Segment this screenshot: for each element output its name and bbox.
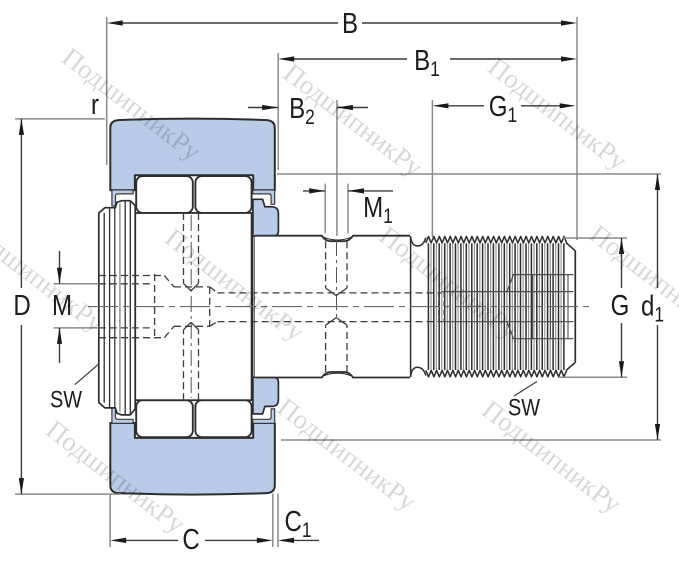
svg-text:SW: SW	[50, 386, 82, 413]
svg-text:D: D	[13, 289, 30, 322]
svg-text:B: B	[342, 7, 358, 40]
svg-text:C: C	[182, 523, 199, 556]
svg-text:G: G	[611, 289, 630, 322]
